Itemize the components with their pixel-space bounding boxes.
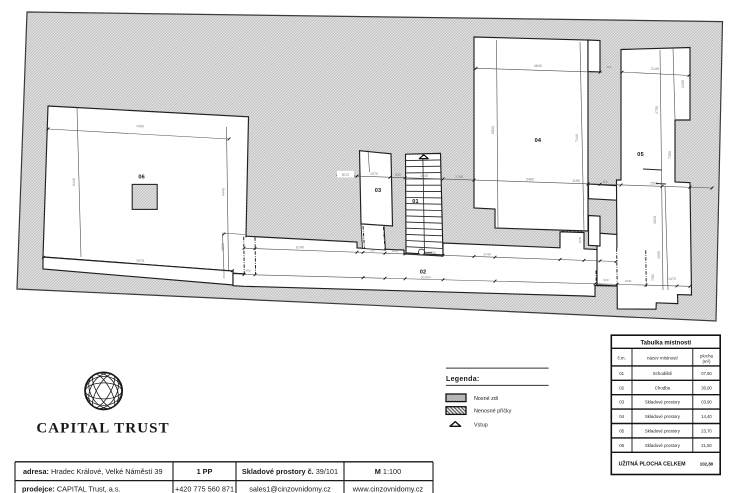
svg-text:4440: 4440	[222, 188, 226, 196]
svg-text:840: 840	[392, 249, 398, 253]
svg-text:450: 450	[245, 269, 250, 273]
svg-text:Tabulka místností: Tabulka místností	[640, 341, 691, 347]
svg-text:14,40: 14,40	[701, 414, 712, 419]
svg-text:Skladové prostory: Skladové prostory	[645, 414, 681, 419]
svg-text:530: 530	[395, 173, 401, 177]
svg-text:01: 01	[412, 199, 419, 205]
svg-text:6440: 6440	[72, 178, 76, 186]
svg-text:05: 05	[637, 152, 644, 158]
svg-text:7440: 7440	[575, 134, 579, 142]
svg-text:1070: 1070	[370, 172, 378, 176]
svg-text:CAPITAL TRUST: CAPITAL TRUST	[36, 421, 169, 437]
svg-text:04: 04	[619, 414, 624, 419]
svg-text:prodejce: CAPITAL Trust, a.s.: prodejce: CAPITAL Trust, a.s.	[22, 485, 121, 493]
svg-text:102,80: 102,80	[700, 462, 714, 467]
svg-text:115: 115	[602, 180, 607, 184]
svg-text:30,00: 30,00	[701, 385, 712, 390]
svg-text:Vstup: Vstup	[474, 423, 488, 429]
svg-text:Skladové prostory: Skladové prostory	[645, 443, 681, 448]
svg-text:1560: 1560	[221, 243, 225, 251]
svg-text:Nosné zdi: Nosné zdi	[474, 396, 498, 402]
svg-text:Schodiště: Schodiště	[653, 371, 673, 376]
svg-text:03,90: 03,90	[701, 400, 712, 405]
svg-text:02: 02	[619, 385, 624, 390]
svg-text:04: 04	[535, 138, 542, 144]
svg-text:600: 600	[603, 278, 608, 282]
svg-text:4755: 4755	[655, 106, 659, 114]
svg-text:30,0m²: 30,0m²	[421, 276, 432, 280]
svg-text:03: 03	[375, 188, 382, 194]
svg-text:1060: 1060	[578, 236, 582, 243]
svg-text:3460: 3460	[526, 178, 534, 182]
svg-text:adresa: Hradec Králové, Velké: adresa: Hradec Králové, Velké Náměstí 39	[23, 467, 163, 476]
svg-text:06: 06	[138, 175, 145, 181]
svg-text:1470: 1470	[668, 277, 676, 281]
svg-text:Legenda:: Legenda:	[446, 376, 480, 383]
svg-text:1040: 1040	[625, 279, 632, 283]
svg-text:06: 06	[619, 443, 624, 448]
svg-text:±0,000: ±0,000	[426, 251, 436, 255]
svg-text:+420 775 560 871: +420 775 560 871	[175, 485, 234, 493]
svg-text:7400: 7400	[136, 125, 144, 129]
svg-text:Skladové prostory č. 39/101: Skladové prostory č. 39/101	[242, 467, 338, 476]
svg-text:7350: 7350	[668, 151, 672, 159]
svg-text:www.cinzovnidomy.cz: www.cinzovnidomy.cz	[352, 485, 424, 493]
svg-text:450: 450	[222, 273, 226, 278]
svg-text:23,70: 23,70	[701, 429, 712, 434]
svg-text:05: 05	[619, 429, 624, 434]
svg-text:1155: 1155	[572, 179, 580, 183]
svg-text:2190: 2190	[681, 80, 685, 88]
svg-text:01: 01	[619, 371, 624, 376]
svg-text:1740: 1740	[483, 252, 491, 256]
svg-text:M 1:100: M 1:100	[375, 467, 401, 476]
svg-text:6140: 6140	[296, 246, 304, 250]
svg-text:(m²): (m²)	[702, 359, 711, 364]
svg-text:7050: 7050	[651, 274, 655, 281]
svg-text:1 PP: 1 PP	[197, 467, 213, 476]
svg-text:1645: 1645	[420, 174, 428, 178]
svg-text:4055: 4055	[657, 251, 661, 259]
svg-text:1740: 1740	[455, 175, 463, 179]
svg-text:115: 115	[607, 65, 612, 69]
svg-text:07,60: 07,60	[701, 371, 712, 376]
svg-text:č.m.: č.m.	[618, 356, 626, 361]
svg-text:sales1@cinzovnidomy.cz: sales1@cinzovnidomy.cz	[249, 485, 331, 493]
svg-text:5070: 5070	[342, 173, 350, 177]
svg-text:4840: 4840	[534, 64, 542, 68]
svg-text:název místností: název místností	[647, 356, 679, 361]
svg-text:Chodba: Chodba	[655, 385, 671, 390]
svg-text:03: 03	[619, 400, 624, 405]
svg-text:2145: 2145	[651, 67, 659, 71]
svg-text:21,50: 21,50	[701, 443, 712, 448]
svg-text:Skladové prostory: Skladové prostory	[645, 429, 681, 434]
svg-text:UŽITNÁ PLOCHA CELKEM: UŽITNÁ PLOCHA CELKEM	[619, 460, 686, 468]
svg-text:1815: 1815	[653, 216, 657, 224]
svg-text:plocha: plocha	[700, 354, 713, 359]
svg-text:Skladové prostory: Skladové prostory	[645, 400, 681, 405]
svg-text:7675: 7675	[136, 259, 144, 263]
svg-text:2505: 2505	[650, 182, 658, 186]
svg-text:Nenosné příčky: Nenosné příčky	[474, 409, 512, 415]
svg-text:790: 790	[369, 248, 375, 252]
svg-text:6830: 6830	[491, 126, 495, 134]
